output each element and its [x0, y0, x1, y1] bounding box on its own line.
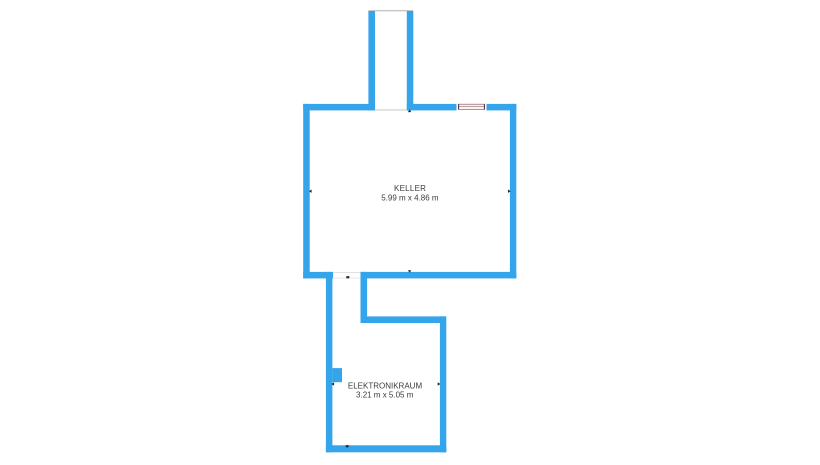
svg-text:5.99 m x 4.86 m: 5.99 m x 4.86 m	[381, 193, 439, 202]
svg-text:3.21 m x 5.05 m: 3.21 m x 5.05 m	[356, 390, 414, 399]
svg-text:ELEKTRONIKRAUM: ELEKTRONIKRAUM	[348, 381, 423, 390]
svg-text:KELLER: KELLER	[394, 184, 426, 193]
